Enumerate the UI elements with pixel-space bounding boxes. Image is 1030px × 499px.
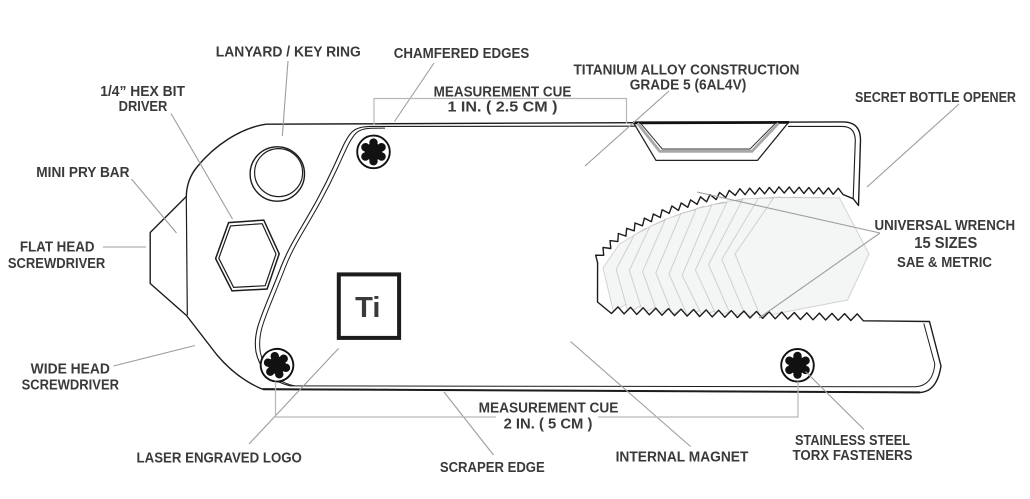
svg-text:1/4” HEX BIT: 1/4” HEX BIT (100, 84, 185, 100)
svg-text:2 IN. ( 5 CM ): 2 IN. ( 5 CM ) (504, 416, 593, 432)
svg-text:SECRET BOTTLE OPENER: SECRET BOTTLE OPENER (855, 90, 1016, 106)
svg-text:MEASUREMENT CUE: MEASUREMENT CUE (434, 85, 572, 101)
svg-text:CHAMFERED EDGES: CHAMFERED EDGES (394, 46, 530, 62)
svg-text:15 SIZES: 15 SIZES (914, 235, 977, 252)
svg-text:LASER ENGRAVED LOGO: LASER ENGRAVED LOGO (137, 451, 302, 467)
svg-text:DRIVER: DRIVER (119, 99, 168, 115)
svg-text:STAINLESS STEEL: STAINLESS STEEL (795, 433, 910, 449)
svg-text:INTERNAL MAGNET: INTERNAL MAGNET (616, 450, 749, 466)
svg-text:Ti: Ti (355, 292, 380, 324)
svg-text:TORX FASTENERS: TORX FASTENERS (793, 448, 913, 464)
svg-text:1 IN. ( 2.5 CM ): 1 IN. ( 2.5 CM ) (448, 100, 558, 116)
svg-text:MINI PRY BAR: MINI PRY BAR (36, 165, 130, 181)
svg-text:SCRAPER EDGE: SCRAPER EDGE (440, 460, 545, 476)
svg-text:SAE & METRIC: SAE & METRIC (897, 255, 992, 271)
svg-text:SCREWDRIVER: SCREWDRIVER (22, 378, 120, 394)
svg-text:TITANIUM ALLOY CONSTRUCTION: TITANIUM ALLOY CONSTRUCTION (574, 63, 800, 79)
svg-text:LANYARD / KEY RING: LANYARD / KEY RING (216, 45, 361, 61)
svg-text:SCREWDRIVER: SCREWDRIVER (8, 256, 106, 272)
svg-text:MEASUREMENT CUE: MEASUREMENT CUE (479, 400, 619, 416)
svg-text:FLAT HEAD: FLAT HEAD (20, 240, 95, 256)
svg-text:UNIVERSAL WRENCH: UNIVERSAL WRENCH (875, 218, 1016, 234)
svg-text:GRADE 5 (6AL4V): GRADE 5 (6AL4V) (630, 78, 747, 94)
svg-text:WIDE HEAD: WIDE HEAD (31, 361, 110, 377)
